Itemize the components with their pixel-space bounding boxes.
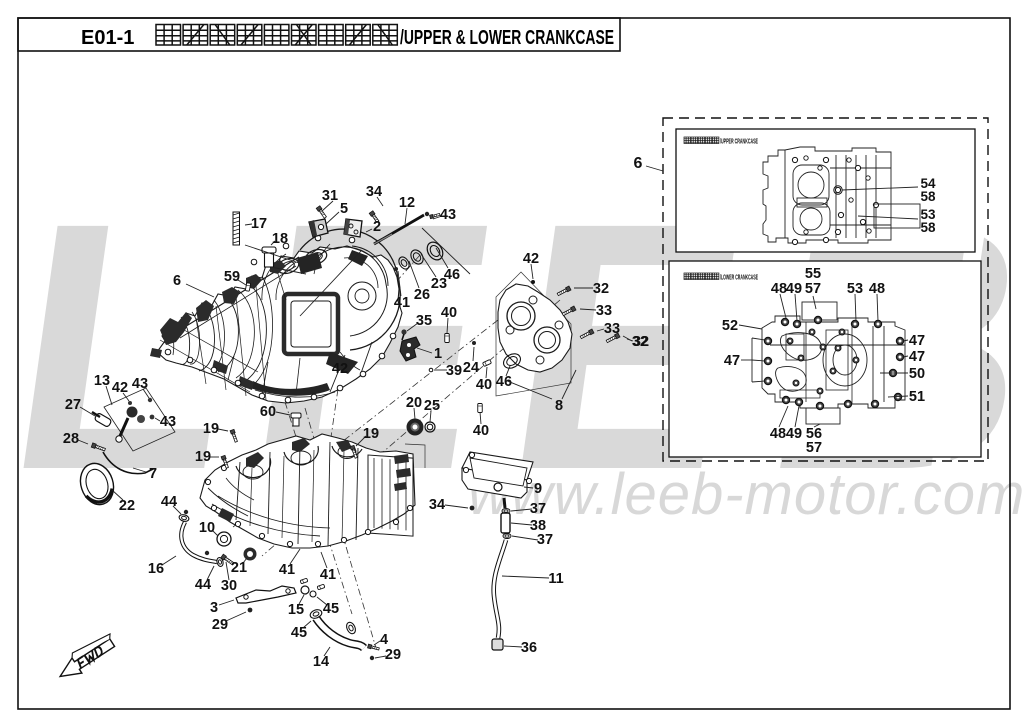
svg-text:19: 19 xyxy=(203,421,219,437)
svg-text:43: 43 xyxy=(160,414,176,430)
svg-text:34: 34 xyxy=(429,497,445,513)
svg-text:48: 48 xyxy=(770,426,786,442)
svg-text:48: 48 xyxy=(771,281,787,297)
svg-text:39: 39 xyxy=(446,363,462,379)
svg-text:3: 3 xyxy=(210,600,218,616)
svg-text:42: 42 xyxy=(523,251,539,267)
svg-text:57: 57 xyxy=(806,440,822,456)
svg-text:35: 35 xyxy=(416,313,432,329)
svg-text:7: 7 xyxy=(149,466,157,482)
svg-text:58: 58 xyxy=(920,220,936,235)
svg-text:40: 40 xyxy=(441,305,457,321)
svg-text:14: 14 xyxy=(313,654,329,670)
svg-text:32: 32 xyxy=(632,334,648,350)
svg-text:19: 19 xyxy=(363,426,379,442)
svg-text:17: 17 xyxy=(251,216,267,232)
svg-text:24: 24 xyxy=(463,360,479,376)
svg-text:55: 55 xyxy=(805,266,821,282)
svg-text:2: 2 xyxy=(373,219,381,235)
svg-text:60: 60 xyxy=(260,404,276,420)
svg-text:26: 26 xyxy=(414,287,430,303)
svg-text:44: 44 xyxy=(161,494,177,510)
svg-text:5: 5 xyxy=(340,201,348,217)
svg-text:13: 13 xyxy=(94,373,110,389)
svg-text:47: 47 xyxy=(909,333,925,349)
svg-text:11: 11 xyxy=(548,571,563,587)
svg-text:57: 57 xyxy=(805,281,821,297)
svg-text:29: 29 xyxy=(212,617,228,633)
svg-text:8: 8 xyxy=(555,398,563,414)
svg-text:41: 41 xyxy=(394,295,410,311)
svg-text:16: 16 xyxy=(148,561,164,577)
svg-text:/LOWER CRANKCASE: /LOWER CRANKCASE xyxy=(720,275,758,282)
svg-text:29: 29 xyxy=(385,647,401,663)
svg-text:12: 12 xyxy=(399,195,415,211)
svg-text:43: 43 xyxy=(132,376,148,392)
svg-text:59: 59 xyxy=(224,269,240,285)
svg-text:22: 22 xyxy=(119,498,135,514)
svg-text:49: 49 xyxy=(786,426,802,442)
svg-text:43: 43 xyxy=(440,207,456,223)
svg-text:/UPPER CRANKCASE: /UPPER CRANKCASE xyxy=(720,139,758,146)
svg-text:9: 9 xyxy=(534,481,542,497)
svg-text:58: 58 xyxy=(920,189,936,204)
svg-text:40: 40 xyxy=(473,423,489,439)
svg-text:34: 34 xyxy=(366,184,382,200)
svg-text:37: 37 xyxy=(530,501,546,517)
svg-text:19: 19 xyxy=(195,449,211,465)
svg-text:25: 25 xyxy=(424,398,440,414)
svg-text:44: 44 xyxy=(195,577,211,593)
svg-text:46: 46 xyxy=(444,267,460,283)
svg-text:E01-1: E01-1 xyxy=(81,27,134,49)
svg-text:31: 31 xyxy=(322,188,338,204)
svg-text:47: 47 xyxy=(724,353,740,369)
svg-text:1: 1 xyxy=(434,346,442,362)
svg-text:47: 47 xyxy=(909,349,925,365)
svg-text:28: 28 xyxy=(63,431,79,447)
svg-text:4: 4 xyxy=(380,632,388,648)
svg-text:6: 6 xyxy=(173,273,181,289)
svg-text:27: 27 xyxy=(65,397,81,413)
svg-text:52: 52 xyxy=(722,318,738,334)
svg-text:21: 21 xyxy=(231,560,247,576)
svg-text:37: 37 xyxy=(537,532,553,548)
svg-text:/UPPER & LOWER CRANKCASE: /UPPER & LOWER CRANKCASE xyxy=(400,27,614,49)
svg-text:6: 6 xyxy=(634,155,643,172)
svg-text:41: 41 xyxy=(279,562,295,578)
svg-text:45: 45 xyxy=(291,625,307,641)
svg-text:40: 40 xyxy=(476,377,492,393)
svg-text:42: 42 xyxy=(112,380,128,396)
svg-text:www.leeb-motor.com: www.leeb-motor.com xyxy=(468,462,1025,527)
svg-text:36: 36 xyxy=(521,640,537,656)
svg-text:49: 49 xyxy=(786,281,802,297)
svg-text:42: 42 xyxy=(332,361,348,377)
svg-text:30: 30 xyxy=(221,578,237,594)
svg-text:41: 41 xyxy=(320,567,336,583)
svg-text:50: 50 xyxy=(909,366,925,382)
svg-text:15: 15 xyxy=(288,602,304,618)
svg-text:45: 45 xyxy=(323,601,339,617)
svg-text:10: 10 xyxy=(199,520,215,536)
svg-text:33: 33 xyxy=(596,303,612,319)
svg-text:33: 33 xyxy=(604,321,620,337)
svg-text:20: 20 xyxy=(406,395,422,411)
svg-text:51: 51 xyxy=(909,389,925,405)
svg-text:32: 32 xyxy=(593,281,609,297)
svg-text:18: 18 xyxy=(272,231,288,247)
